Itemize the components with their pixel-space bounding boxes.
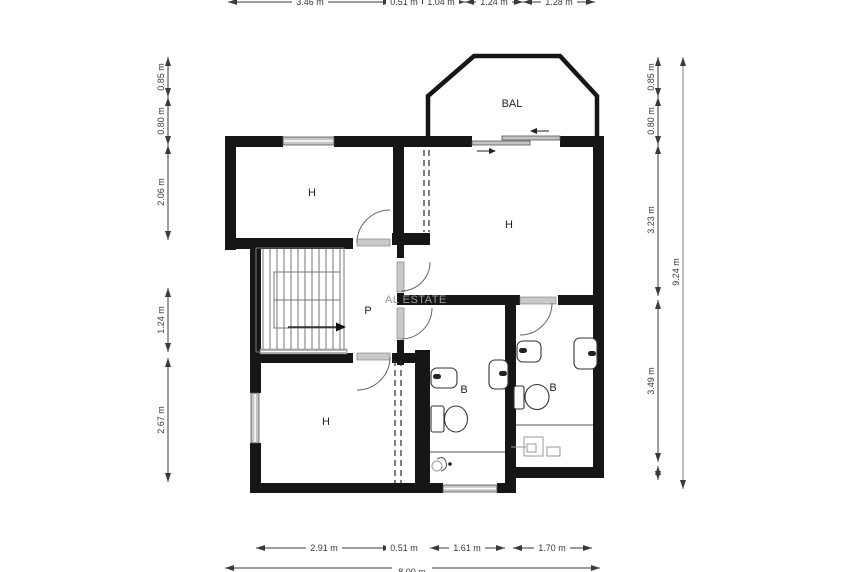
toilet-tank-icon	[514, 386, 524, 409]
wall	[225, 238, 353, 249]
wall	[415, 350, 430, 493]
wall	[593, 136, 604, 478]
watermark: AL ESTATE	[385, 294, 447, 306]
dim-label-right-1: 0.80 m	[646, 107, 656, 135]
tap-icon	[433, 374, 441, 379]
dim-label-top-0: 3.46 m	[296, 0, 324, 7]
wall	[393, 136, 404, 245]
dim-label-left-3: 1.24 m	[156, 306, 166, 334]
door-leaf	[397, 308, 404, 339]
room-label-p: P	[364, 305, 371, 317]
wall	[392, 353, 430, 363]
dim-label-right-3: 3.49 m	[646, 367, 656, 395]
door-leaf	[357, 239, 390, 246]
tap-icon	[588, 351, 596, 356]
tap-icon	[499, 371, 507, 376]
dim-label-left-4: 2.67 m	[156, 406, 166, 434]
dim-label-right-0: 0.85 m	[646, 63, 656, 91]
toilet-bowl-icon	[445, 406, 468, 432]
dim-label-bottom-3: 1.70 m	[538, 543, 566, 553]
floor-plan: BAL H H P H B B AL ESTATE 3.46 m 0.51 m …	[0, 0, 850, 572]
room-label-h-top-right: H	[505, 219, 513, 231]
wall	[397, 245, 404, 258]
toilet-tank-icon	[431, 406, 444, 432]
room-label-h-bottom-left: H	[322, 416, 330, 428]
sliding-door-leaf	[472, 141, 530, 145]
door-leaf	[520, 297, 556, 304]
dim-label-left-0: 0.85 m	[156, 63, 166, 91]
room-label-b-middle: B	[460, 384, 467, 396]
tap-icon	[519, 348, 527, 353]
room-label-bal: BAL	[502, 98, 523, 110]
room-label-h-top-left: H	[308, 187, 316, 199]
dim-label-top-1: 0.51 m	[390, 0, 418, 7]
wall	[250, 353, 353, 363]
wall	[508, 467, 604, 478]
sliding-door-leaf	[502, 136, 560, 140]
wall	[250, 483, 443, 493]
room-label-b-right: B	[549, 382, 556, 394]
wall	[558, 295, 604, 305]
dim-label-bottom-0: 2.91 m	[310, 543, 338, 553]
wall	[225, 136, 236, 250]
dim-label-bottom-2: 1.61 m	[453, 543, 481, 553]
dim-label-left-1: 0.80 m	[156, 107, 166, 135]
dim-label-right-2: 3.23 m	[646, 206, 656, 234]
drain-icon	[448, 462, 452, 466]
dim-label-bottom-total: 8.00 m	[398, 567, 426, 572]
dim-label-bottom-1: 0.51 m	[390, 543, 418, 553]
floor-plan-drawing: BAL H H P H B B AL ESTATE 3.46 m 0.51 m …	[0, 0, 850, 572]
dim-label-left-2: 2.06 m	[156, 178, 166, 206]
dim-label-right-total: 9.24 m	[671, 258, 681, 286]
door-leaf	[357, 353, 390, 360]
dim-label-top-3: 1.24 m	[480, 0, 508, 7]
dim-label-top-2: 1.04 m	[427, 0, 455, 7]
door-leaf	[397, 262, 404, 292]
toilet-bowl-icon	[525, 385, 549, 410]
dim-label-top-4: 1.28 m	[545, 0, 573, 7]
